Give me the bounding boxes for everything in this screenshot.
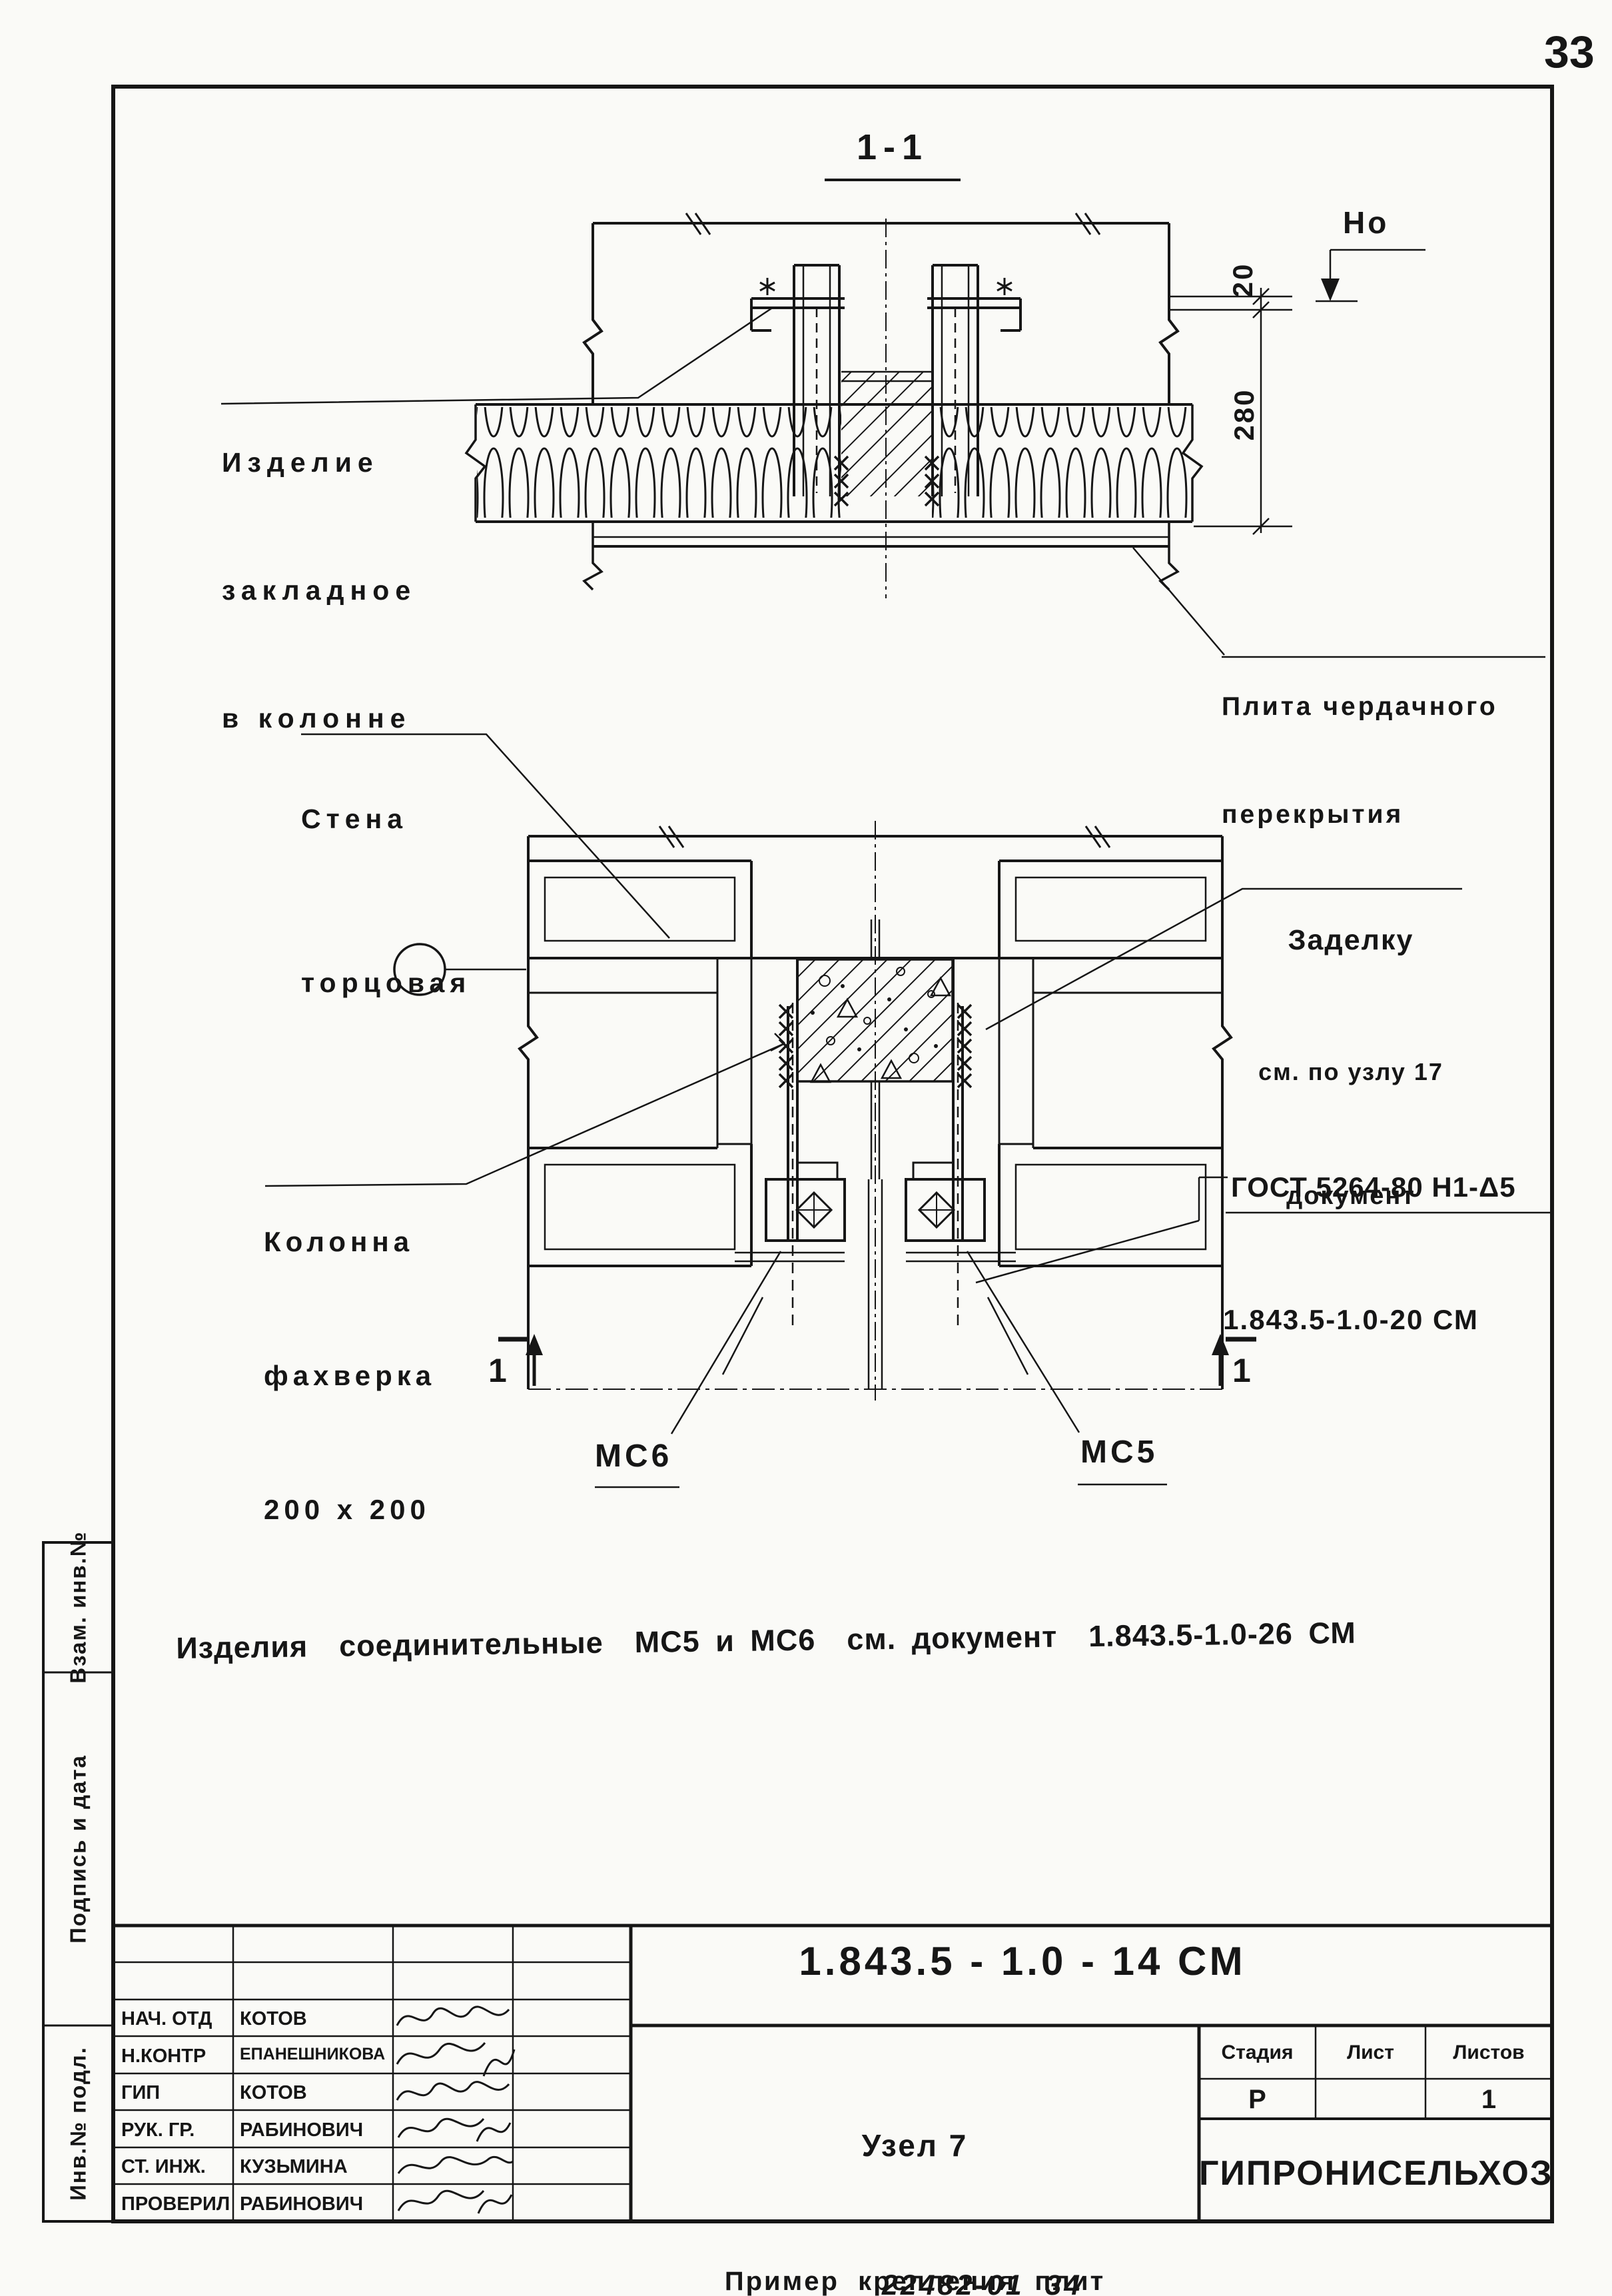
sheet-col-header: Лист xyxy=(1316,2040,1425,2065)
embedded-item-label-line1: Изделие xyxy=(222,441,416,484)
section-mark-left: 1 xyxy=(488,1350,507,1392)
organization-name: ГИПРОНИСЕЛЬХОЗ xyxy=(1199,2152,1552,2195)
fachwerk-column-label: Колонна фахверка 200 x 200 xyxy=(264,1130,436,1576)
table-row-name-3: КОТОВ xyxy=(240,2081,392,2105)
seal-note-label: Заделку см. по узлу 17 документ 1.843.5-… xyxy=(1211,837,1491,1382)
elevation-label: Но xyxy=(1343,204,1389,243)
seal-note-line4: 1.843.5-1.0-20 СМ xyxy=(1211,1299,1491,1341)
dim-large-label: 280 xyxy=(1227,388,1262,440)
table-row-name-2: ЕПАНЕШНИКОВА xyxy=(240,2044,392,2065)
item-label-mc6: МС6 xyxy=(595,1436,672,1476)
seal-note-line2: см. по узлу 17 xyxy=(1211,1051,1491,1093)
table-row-role-6: ПРОВЕРИЛ xyxy=(121,2192,231,2216)
footer-line: 22482-01 34 ФОРМАТ А4 xyxy=(866,2232,1120,2296)
fachwerk-column-line3: 200 x 200 xyxy=(264,1487,436,1532)
dim-small-label: 20 xyxy=(1226,263,1261,298)
table-row-role-4: РУК. ГР. xyxy=(121,2118,231,2142)
attic-slab-label-line2: перекрытия xyxy=(1222,797,1498,833)
stage-col-header: Стадия xyxy=(1199,2040,1316,2065)
drawing-sheet: 33 1-1 Изделие закладное в колонне 20 28… xyxy=(0,0,1612,2296)
weld-gost-label: ГОСТ 5264-80 Н1-Δ5 xyxy=(1231,1170,1516,1205)
stage-value: Р xyxy=(1199,2083,1316,2116)
attic-slab-label-line1: Плита чердачного xyxy=(1222,689,1498,725)
end-wall-label-line2: торцовая xyxy=(301,955,471,1010)
fachwerk-column-line1: Колонна xyxy=(264,1219,436,1264)
page-number: 33 xyxy=(1544,24,1595,81)
sidebar-cell-podpis-data: Подпись и дата xyxy=(64,1754,91,1944)
seal-note-line1: Заделку xyxy=(1211,919,1491,961)
item-label-mc5: МС5 xyxy=(1080,1433,1158,1472)
end-wall-label: Стена торцовая xyxy=(301,682,471,1065)
end-wall-label-line1: Стена xyxy=(301,792,471,846)
section-mark-right: 1 xyxy=(1232,1350,1251,1392)
sidebar-cell-vzam-inv: Взам. инв.№ xyxy=(64,1530,91,1683)
table-row-name-5: КУЗЬМИНА xyxy=(240,2155,392,2179)
doc-number: 1.843.5 - 1.0 - 14 СМ xyxy=(639,1936,1406,1986)
table-row-role-1: НАЧ. ОТД xyxy=(121,2007,231,2031)
section-title: 1-1 xyxy=(826,125,959,171)
sheets-value: 1 xyxy=(1425,2083,1552,2116)
footer-order-code: 22482-01 34 xyxy=(882,2269,1082,2296)
table-row-name-6: РАБИНОВИЧ xyxy=(240,2192,392,2216)
table-row-role-3: ГИП xyxy=(121,2081,231,2105)
attic-slab-label: Плита чердачного перекрытия xyxy=(1222,617,1498,869)
embedded-item-label-line2: закладное xyxy=(222,569,416,612)
table-row-role-2: Н.КОНТР xyxy=(121,2044,231,2068)
sheets-col-header: Листов xyxy=(1425,2040,1552,2065)
section-view-linework xyxy=(221,180,1545,657)
table-row-name-4: РАБИНОВИЧ xyxy=(240,2118,392,2142)
subject-line1: Узел 7 xyxy=(631,2123,1199,2168)
fachwerk-column-line2: фахверка xyxy=(264,1353,436,1398)
sidebar-cell-inv-podl: Инв.№ подл. xyxy=(64,2046,91,2201)
table-row-role-5: СТ. ИНЖ. xyxy=(121,2155,231,2179)
table-row-name-1: КОТОВ xyxy=(240,2007,392,2031)
